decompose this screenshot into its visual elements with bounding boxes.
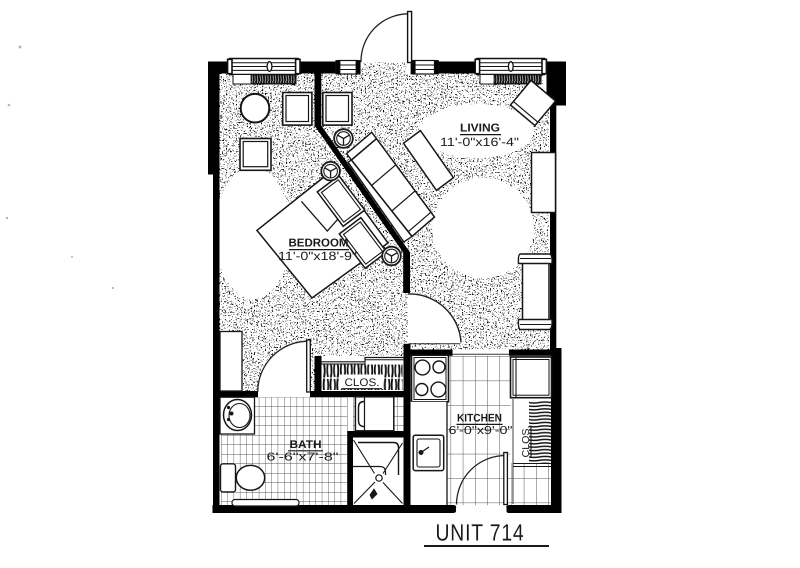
svg-text:6'-6"x7'-8": 6'-6"x7'-8" [267, 452, 339, 464]
svg-text:KITCHEN: KITCHEN [457, 413, 502, 425]
svg-text:BATH: BATH [290, 439, 322, 451]
svg-text:6'-0"x9'-0": 6'-0"x9'-0" [449, 425, 513, 437]
svg-text:11'-0"x18'-9": 11'-0"x18'-9" [278, 249, 357, 263]
svg-text:UNIT 714: UNIT 714 [436, 520, 525, 546]
svg-text:LIVING: LIVING [460, 123, 500, 135]
svg-text:CLOS.: CLOS. [345, 377, 380, 389]
svg-text:BEDROOM: BEDROOM [289, 238, 349, 250]
svg-text:CLOS.: CLOS. [521, 426, 532, 458]
svg-text:11'-0"x16'-4": 11'-0"x16'-4" [440, 135, 519, 149]
